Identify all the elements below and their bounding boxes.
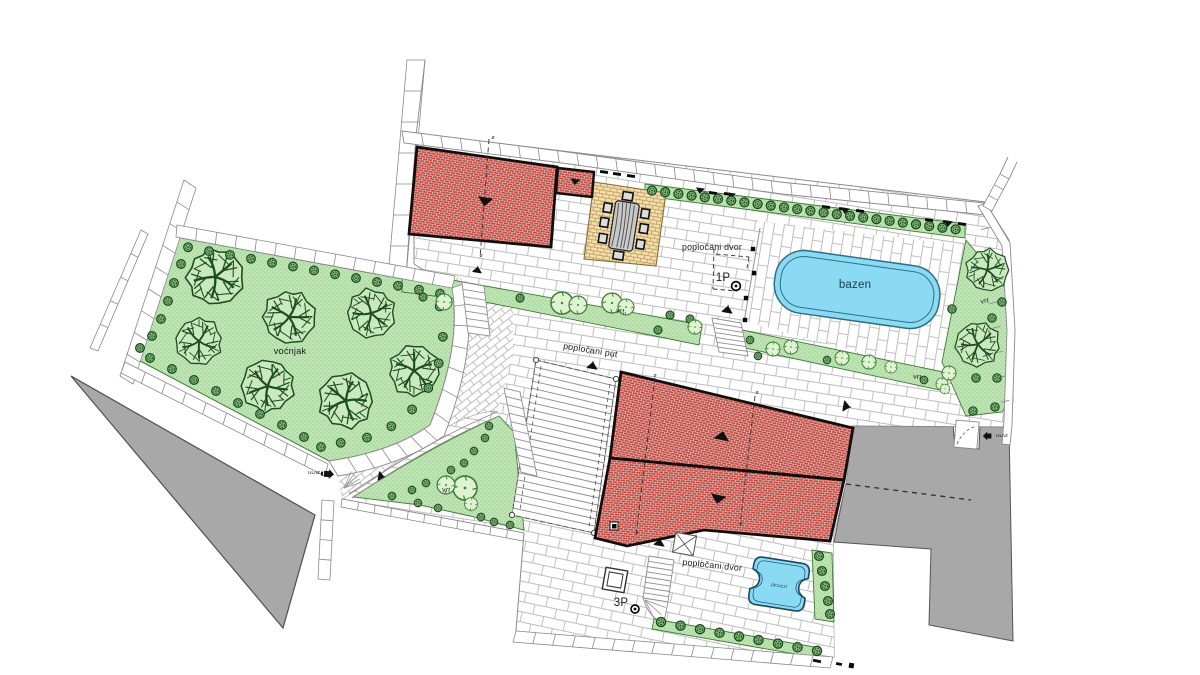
svg-text:ø: ø <box>653 373 656 379</box>
svg-text:ø: ø <box>491 135 494 141</box>
svg-text:3P: 3P <box>614 597 629 609</box>
svg-text:ULAZ: ULAZ <box>996 433 1008 438</box>
svg-text:vrt: vrt <box>616 307 625 315</box>
svg-text:ø: ø <box>739 521 742 527</box>
svg-text:vrt: vrt <box>442 487 451 495</box>
svg-text:bazen: bazen <box>839 279 871 291</box>
svg-text:ø: ø <box>479 253 482 259</box>
svg-text:popločani dvor: popločani dvor <box>682 242 742 252</box>
svg-text:ULAZ: ULAZ <box>308 470 320 475</box>
svg-text:1P: 1P <box>716 272 731 284</box>
svg-text:vrt: vrt <box>913 373 922 381</box>
svg-text:vrt: vrt <box>980 297 989 305</box>
svg-text:voćnjak: voćnjak <box>274 346 307 356</box>
svg-text:ø: ø <box>755 390 758 396</box>
svg-text:ø: ø <box>635 530 638 536</box>
